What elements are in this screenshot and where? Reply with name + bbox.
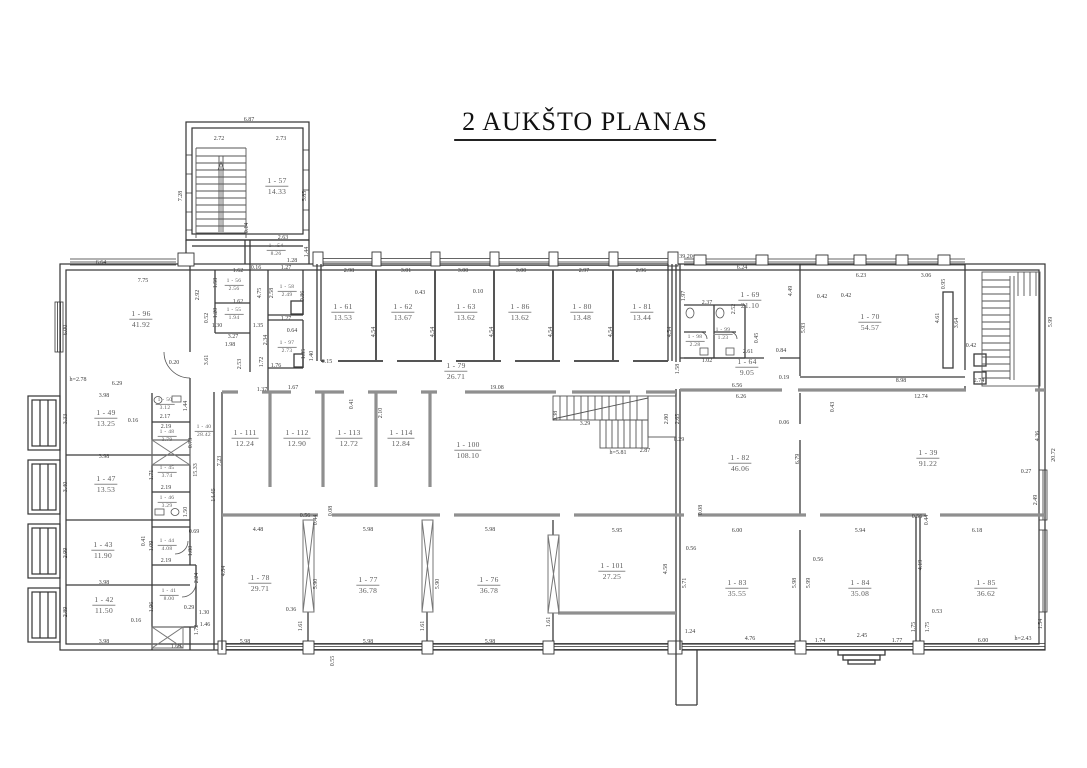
room-area: 12.24 — [232, 439, 259, 449]
room-label: 1 - 6313.62 — [454, 302, 477, 323]
room-label: 1 - 7054.57 — [858, 312, 881, 333]
dimension-label: 2.73 — [276, 136, 287, 142]
room-area: 2.56 — [225, 286, 244, 293]
dimension-label: 3.61 — [204, 355, 210, 366]
room-label: 1 - 8435.08 — [848, 578, 871, 599]
room-label: 1 - 8246.06 — [728, 453, 751, 474]
room-area: 8.26 — [267, 251, 286, 258]
dimension-label: 1.74 — [815, 638, 826, 644]
dimension-label: 5.90 — [435, 579, 441, 590]
dimension-label: 1.80 — [188, 546, 194, 557]
room-area: 13.62 — [508, 313, 531, 323]
dimension-label: 0.53 — [932, 609, 943, 615]
room-label: 1 - 8013.48 — [570, 302, 593, 323]
room-label: 1 - 7829.71 — [248, 573, 271, 594]
dimension-label: 1.97 — [681, 291, 687, 302]
dimension-label: 4.36 — [1035, 431, 1041, 442]
room-number: 1 - 111 — [232, 428, 259, 439]
dimension-label: 0.20 — [169, 360, 180, 366]
dimension-label: 3.01 — [401, 268, 412, 274]
windows — [55, 150, 1047, 650]
dimension-label: 1.20 — [213, 308, 219, 319]
room-label: 1 - 7636.78 — [477, 575, 500, 596]
room-area: 3.79 — [158, 437, 177, 444]
dimension-label: 0.73 — [188, 438, 194, 449]
dimension-label: 1.30 — [199, 610, 210, 616]
dimension-label: 1.46 — [200, 622, 211, 628]
dimension-label: 5.99 — [1048, 317, 1054, 328]
room-area: 3.29 — [158, 503, 177, 510]
dimension-label: 1.75 — [925, 622, 931, 633]
dimension-label: 7.75 — [138, 278, 149, 284]
dimension-label: 1.27 — [281, 316, 292, 322]
dimension-label: 0.44 — [924, 515, 930, 526]
dimension-label: 2.96 — [636, 268, 647, 274]
dimension-label: 4.58 — [663, 564, 669, 575]
dimension-label: 1.54 — [1038, 619, 1044, 630]
room-number: 1 - 113 — [335, 428, 362, 439]
dimension-label: 0.08 — [328, 506, 334, 517]
dimension-label: 1.40 — [309, 351, 315, 362]
dimension-label: 1.58 — [213, 278, 219, 289]
dimension-label: 4.48 — [253, 527, 264, 533]
dimension-label: 0.41 — [349, 399, 355, 410]
floor-plan-page: 2 AUKŠTO PLANAS 1 - 9641.921 - 5714.331 … — [0, 0, 1087, 768]
room-area: 12.84 — [387, 439, 414, 449]
dimension-label: 0.43 — [830, 402, 836, 413]
room-number: 1 - 42 — [92, 595, 115, 606]
room-number: 1 - 86 — [508, 302, 531, 313]
dimension-label: 6.56 — [732, 383, 743, 389]
room-number: 1 - 83 — [725, 578, 748, 589]
dimension-label: 0.56 — [686, 546, 697, 552]
dimension-label: 1.35 — [253, 323, 264, 329]
room-area: 21.10 — [738, 301, 761, 311]
dimension-label: 2.49 — [1033, 495, 1039, 506]
room-area: 11.50 — [92, 606, 115, 616]
dimension-label: 4.84 — [221, 566, 227, 577]
dimension-label: 1.61 — [420, 621, 426, 632]
dimension-label: 4.54 — [548, 327, 554, 338]
room-label: 1 - 483.79 — [158, 429, 177, 443]
dimension-label: 3.29 — [580, 421, 591, 427]
room-number: 1 - 49 — [94, 408, 117, 419]
room-label: 1 - 6113.53 — [331, 302, 354, 323]
room-label: 1 - 444.08 — [158, 538, 177, 552]
room-area: 13.62 — [454, 313, 477, 323]
room-area: 2.28 — [686, 342, 705, 349]
room-label: 1 - 503.12 — [156, 397, 175, 411]
room-number: 1 - 55 — [225, 307, 244, 315]
room-label: 1 - 548.26 — [267, 243, 286, 257]
dimension-label: 5.94 — [855, 528, 866, 534]
room-label: 1 - 453.74 — [158, 465, 177, 479]
dimension-label: 0.14 — [244, 223, 250, 234]
dimension-label: 2.45 — [857, 633, 868, 639]
dimension-label: 8.98 — [896, 378, 907, 384]
dimension-label: 1.77 — [892, 638, 903, 644]
dimension-label: 6.24 — [737, 265, 748, 271]
dimension-label: 1.02 — [702, 358, 713, 364]
dimension-label: 2.89 — [63, 607, 69, 618]
dimension-label: 5.71 — [682, 578, 688, 589]
dimension-label: 0.69 — [189, 529, 200, 535]
dimension-label: 1.35 — [301, 349, 307, 360]
dimension-label: 0.42 — [841, 293, 852, 299]
dimension-label: 6.23 — [856, 273, 867, 279]
dimension-label: 4.54 — [608, 327, 614, 338]
dimension-label: 6.26 — [736, 394, 747, 400]
dimension-label: 0.27 — [1021, 469, 1032, 475]
dimension-label: 5.98 — [485, 527, 496, 533]
room-label: 1 - 11312.72 — [335, 428, 362, 449]
dimension-label: 3.98 — [99, 454, 110, 460]
room-area: 2.73 — [278, 348, 297, 355]
dimension-label: 3.00 — [458, 268, 469, 274]
dimension-label: 1.09 — [149, 541, 155, 552]
dimension-label: 4.75 — [257, 288, 263, 299]
room-label: 1 - 11212.90 — [283, 428, 310, 449]
dimension-label: 3.27 — [228, 334, 239, 340]
dimension-label: 0.16 — [131, 618, 142, 624]
room-number: 1 - 114 — [387, 428, 414, 439]
dimension-label: 1.37 — [257, 387, 268, 393]
dimension-label: 2.74 — [974, 378, 985, 384]
room-number: 1 - 79 — [444, 361, 467, 372]
dimension-label: 2.87 — [640, 448, 651, 454]
room-label: 1 - 8536.62 — [974, 578, 997, 599]
room-number: 1 - 101 — [598, 561, 625, 572]
room-label: 1 - 4028.42 — [195, 424, 214, 438]
dimension-label: 1.96 — [149, 602, 155, 613]
dimension-label: 2.61 — [743, 349, 754, 355]
dimension-label: 1.71 — [149, 470, 155, 481]
dimension-label: 39.20 — [679, 254, 693, 260]
room-label: 1 - 6213.67 — [391, 302, 414, 323]
room-number: 1 - 70 — [858, 312, 881, 323]
room-number: 1 - 48 — [158, 429, 177, 437]
dimension-label: 4.54 — [371, 327, 377, 338]
dimension-label: 4.54 — [430, 327, 436, 338]
room-area: 35.55 — [725, 589, 748, 599]
dimension-label: 2.19 — [161, 424, 172, 430]
dimension-label: 2.97 — [579, 268, 590, 274]
staircase-middle — [553, 396, 676, 448]
dimension-label: 0.15 — [322, 359, 333, 365]
room-area: 46.06 — [728, 464, 751, 474]
room-number: 1 - 77 — [356, 575, 379, 586]
room-area: 29.71 — [248, 584, 271, 594]
room-area: 108.10 — [454, 451, 481, 461]
room-area: 8.00 — [160, 596, 179, 603]
left-window-bays — [28, 396, 60, 642]
room-label: 1 - 4713.53 — [94, 474, 117, 495]
room-number: 1 - 61 — [331, 302, 354, 313]
room-number: 1 - 78 — [248, 573, 271, 584]
room-label: 1 - 4311.90 — [91, 540, 114, 561]
room-number: 1 - 40 — [195, 424, 214, 432]
room-area: 13.53 — [94, 485, 117, 495]
room-label: 1 - 11112.24 — [232, 428, 259, 449]
room-area: 14.33 — [265, 187, 288, 197]
dimension-label: 5.95 — [612, 528, 623, 534]
room-number: 1 - 43 — [91, 540, 114, 551]
room-label: 1 - 4913.25 — [94, 408, 117, 429]
dimension-label: 1.58 — [675, 364, 681, 375]
room-area: 13.25 — [94, 419, 117, 429]
room-label: 1 - 551.94 — [225, 307, 244, 321]
dimension-label: 0.44 — [313, 515, 319, 526]
room-area: 36.78 — [477, 586, 500, 596]
dimension-label: 0.55 — [330, 656, 336, 667]
room-area: 26.71 — [444, 372, 467, 382]
dimension-label: 3.00 — [516, 268, 527, 274]
dimension-label: 4.54 — [489, 327, 495, 338]
dimension-label: 1.76 — [271, 363, 282, 369]
dimension-label: 1.24 — [685, 629, 696, 635]
plan-title: 2 AUKŠTO PLANAS — [454, 107, 716, 141]
room-area: 54.57 — [858, 323, 881, 333]
dimension-label: 14.45 — [211, 488, 217, 502]
room-number: 1 - 57 — [265, 176, 288, 187]
room-number: 1 - 41 — [160, 588, 179, 596]
dimension-label: 1.75 — [911, 622, 917, 633]
dimension-label: 0.06 — [779, 420, 790, 426]
room-label: 1 - 418.00 — [160, 588, 179, 602]
dimension-label: 1.61 — [298, 621, 304, 632]
dimension-label: 5.98 — [485, 639, 496, 645]
dimension-label: 2.52 — [731, 304, 737, 315]
room-area: 13.53 — [331, 313, 354, 323]
room-area: 36.62 — [974, 589, 997, 599]
dimension-label: 6.00 — [732, 528, 743, 534]
dimension-label: 4.61 — [935, 313, 941, 324]
dimension-label: 0.56 — [300, 513, 311, 519]
dimension-label: 2.37 — [702, 300, 713, 306]
dimension-label: 3.98 — [99, 639, 110, 645]
dimension-label: 0.43 — [415, 290, 426, 296]
thick-walls — [222, 390, 1045, 613]
dimension-label: 5.98 — [363, 527, 374, 533]
room-area: 13.44 — [630, 313, 653, 323]
dimension-label: 0.95 — [941, 279, 947, 290]
dimension-label: 1.38 — [553, 411, 559, 422]
dimension-label: 0.42 — [966, 343, 977, 349]
dimension-label: 4.54 — [667, 327, 673, 338]
dimension-label: h=2.78 — [70, 377, 87, 383]
room-number: 1 - 69 — [738, 290, 761, 301]
dimension-label: 0.41 — [141, 536, 147, 547]
dimension-label: 5.90 — [313, 579, 319, 590]
room-number: 1 - 100 — [454, 440, 481, 451]
dimension-label: 0.29 — [184, 605, 195, 611]
dimension-label: 6.29 — [112, 381, 123, 387]
dimension-label: 5.98 — [363, 639, 374, 645]
room-number: 1 - 45 — [158, 465, 177, 473]
room-number: 1 - 63 — [454, 302, 477, 313]
dimension-label: 2.34 — [263, 335, 269, 346]
dimension-label: 4.19 — [918, 560, 924, 571]
classroom-partitions — [321, 270, 668, 361]
dimension-label: 2.63 — [278, 235, 289, 241]
dimension-label: 20.72 — [1051, 448, 1057, 462]
room-number: 1 - 80 — [570, 302, 593, 313]
dimension-label: 3.98 — [99, 580, 110, 586]
room-area: 1.94 — [225, 315, 244, 322]
room-number: 1 - 54 — [267, 243, 286, 251]
dimension-label: 1.28 — [287, 258, 298, 264]
room-number: 1 - 98 — [686, 334, 705, 342]
dimension-label: 1.60 — [171, 644, 182, 650]
room-area: 11.90 — [91, 551, 114, 561]
room-label: 1 - 982.28 — [686, 334, 705, 348]
room-area: 12.72 — [335, 439, 362, 449]
room-label: 1 - 562.56 — [225, 278, 244, 292]
dimension-label: h=2.43 — [1015, 636, 1032, 642]
dimension-label: 1.72 — [259, 357, 265, 368]
dimension-label: 1.50 — [183, 507, 189, 518]
dimension-label: 0.16 — [251, 265, 262, 271]
dimension-label: 1.30 — [212, 323, 223, 329]
room-area: 1.23 — [714, 335, 733, 342]
dimension-label: 0.84 — [776, 348, 787, 354]
room-area: 27.25 — [598, 572, 625, 582]
dimension-label: 5.98 — [240, 639, 251, 645]
dimension-label: 3.33 — [63, 414, 69, 425]
dimension-label: 2.65 — [675, 414, 681, 425]
dimension-label: 3.64 — [954, 318, 960, 329]
room-area: 3.74 — [158, 473, 177, 480]
dimension-label: 15.33 — [193, 463, 199, 477]
dimension-label: h=5.81 — [610, 450, 627, 456]
room-number: 1 - 99 — [714, 327, 733, 335]
dimension-label: 1.27 — [281, 265, 292, 271]
dimension-label: 6.87 — [244, 117, 255, 123]
room-label: 1 - 8335.55 — [725, 578, 748, 599]
dimension-label: 0.52 — [204, 313, 210, 324]
dimension-label: 0.86 — [300, 291, 306, 302]
room-label: 1 - 6921.10 — [738, 290, 761, 311]
room-number: 1 - 39 — [916, 448, 939, 459]
dimension-label: 2.72 — [214, 136, 225, 142]
room-label: 1 - 649.05 — [735, 357, 758, 378]
room-number: 1 - 50 — [156, 397, 175, 405]
dimension-label: 4.49 — [788, 286, 794, 297]
dimension-label: 2.19 — [161, 558, 172, 564]
room-number: 1 - 58 — [278, 284, 297, 292]
room-label: 1 - 991.23 — [714, 327, 733, 341]
dimension-label: 2.92 — [195, 290, 201, 301]
room-area: 13.48 — [570, 313, 593, 323]
dimension-label: 1.67 — [288, 385, 299, 391]
dimension-label: 6.79 — [795, 454, 801, 465]
room-label: 1 - 7926.71 — [444, 361, 467, 382]
dimension-label: 7.28 — [178, 191, 184, 202]
dimension-label: 2.10 — [378, 408, 384, 419]
dimension-label: 0.56 — [813, 557, 824, 563]
room-number: 1 - 62 — [391, 302, 414, 313]
dimension-label: 1.44 — [183, 401, 189, 412]
dimension-label: 6.00 — [978, 638, 989, 644]
room-number: 1 - 81 — [630, 302, 653, 313]
room-area: 13.67 — [391, 313, 414, 323]
dimension-label: 6.64 — [96, 260, 107, 266]
room-label: 1 - 11412.84 — [387, 428, 414, 449]
dimension-label: 2.98 — [344, 268, 355, 274]
room-number: 1 - 56 — [225, 278, 244, 286]
room-label: 1 - 100108.10 — [454, 440, 481, 461]
room-label: 1 - 5714.33 — [265, 176, 288, 197]
room-label: 1 - 7736.78 — [356, 575, 379, 596]
room-number: 1 - 82 — [728, 453, 751, 464]
dimension-label: 4.76 — [745, 636, 756, 642]
dimension-label: 5.99 — [806, 578, 812, 589]
staircase-right — [982, 272, 1040, 386]
room-number: 1 - 97 — [278, 340, 297, 348]
room-number: 1 - 112 — [283, 428, 310, 439]
dimension-label: 19.08 — [490, 385, 504, 391]
room-number: 1 - 85 — [974, 578, 997, 589]
room-area: 3.12 — [156, 405, 175, 412]
dimension-label: 0.08 — [698, 505, 704, 516]
dimension-label: 5.98 — [792, 578, 798, 589]
room-area: 35.08 — [848, 589, 871, 599]
room-label: 1 - 10127.25 — [598, 561, 625, 582]
room-area: 36.78 — [356, 586, 379, 596]
dimension-label: 2.53 — [237, 359, 243, 370]
dimension-label: 2.24 — [194, 573, 200, 584]
room-area: 2.49 — [278, 292, 297, 299]
dimension-label: 2.17 — [160, 414, 171, 420]
dimension-label: 1.62 — [233, 268, 244, 274]
room-label: 1 - 582.49 — [278, 284, 297, 298]
room-area: 9.05 — [735, 368, 758, 378]
floor-plan-drawing: 2 AUKŠTO PLANAS 1 - 9641.921 - 5714.331 … — [0, 0, 1087, 768]
room-number: 1 - 44 — [158, 538, 177, 546]
room-number: 1 - 47 — [94, 474, 117, 485]
room-area: 4.08 — [158, 546, 177, 553]
room-area: 12.90 — [283, 439, 310, 449]
room-number: 1 - 46 — [158, 495, 177, 503]
dimension-label: 1.61 — [546, 617, 552, 628]
room-number: 1 - 96 — [129, 309, 152, 320]
dimension-label: 1.62 — [233, 299, 244, 305]
dimension-label: 2.58 — [269, 288, 275, 299]
dimension-label: 0.42 — [817, 294, 828, 300]
dimension-label: 5.93 — [801, 323, 807, 334]
room-label: 1 - 463.29 — [158, 495, 177, 509]
dimension-label: 12.74 — [914, 394, 928, 400]
dimension-label: 0.29 — [674, 437, 685, 443]
room-label: 1 - 8113.44 — [630, 302, 653, 323]
room-area: 41.92 — [129, 320, 152, 330]
room-number: 1 - 76 — [477, 575, 500, 586]
room-area: 91.22 — [916, 459, 939, 469]
room-label: 1 - 972.73 — [278, 340, 297, 354]
dimension-label: 2.19 — [161, 485, 172, 491]
dimension-label: 7.23 — [217, 456, 223, 467]
dimension-label: 0.45 — [754, 333, 760, 344]
room-label: 1 - 3991.22 — [916, 448, 939, 469]
dimension-label: 0.16 — [128, 418, 139, 424]
room-label: 1 - 9641.92 — [129, 309, 152, 330]
dimension-label: 6.00 — [63, 325, 69, 336]
dimension-label: 0.10 — [473, 289, 484, 295]
room-number: 1 - 84 — [848, 578, 871, 589]
dimension-label: 0.36 — [286, 607, 297, 613]
dimension-label: 2.99 — [63, 548, 69, 559]
dimension-label: 2.80 — [664, 414, 670, 425]
